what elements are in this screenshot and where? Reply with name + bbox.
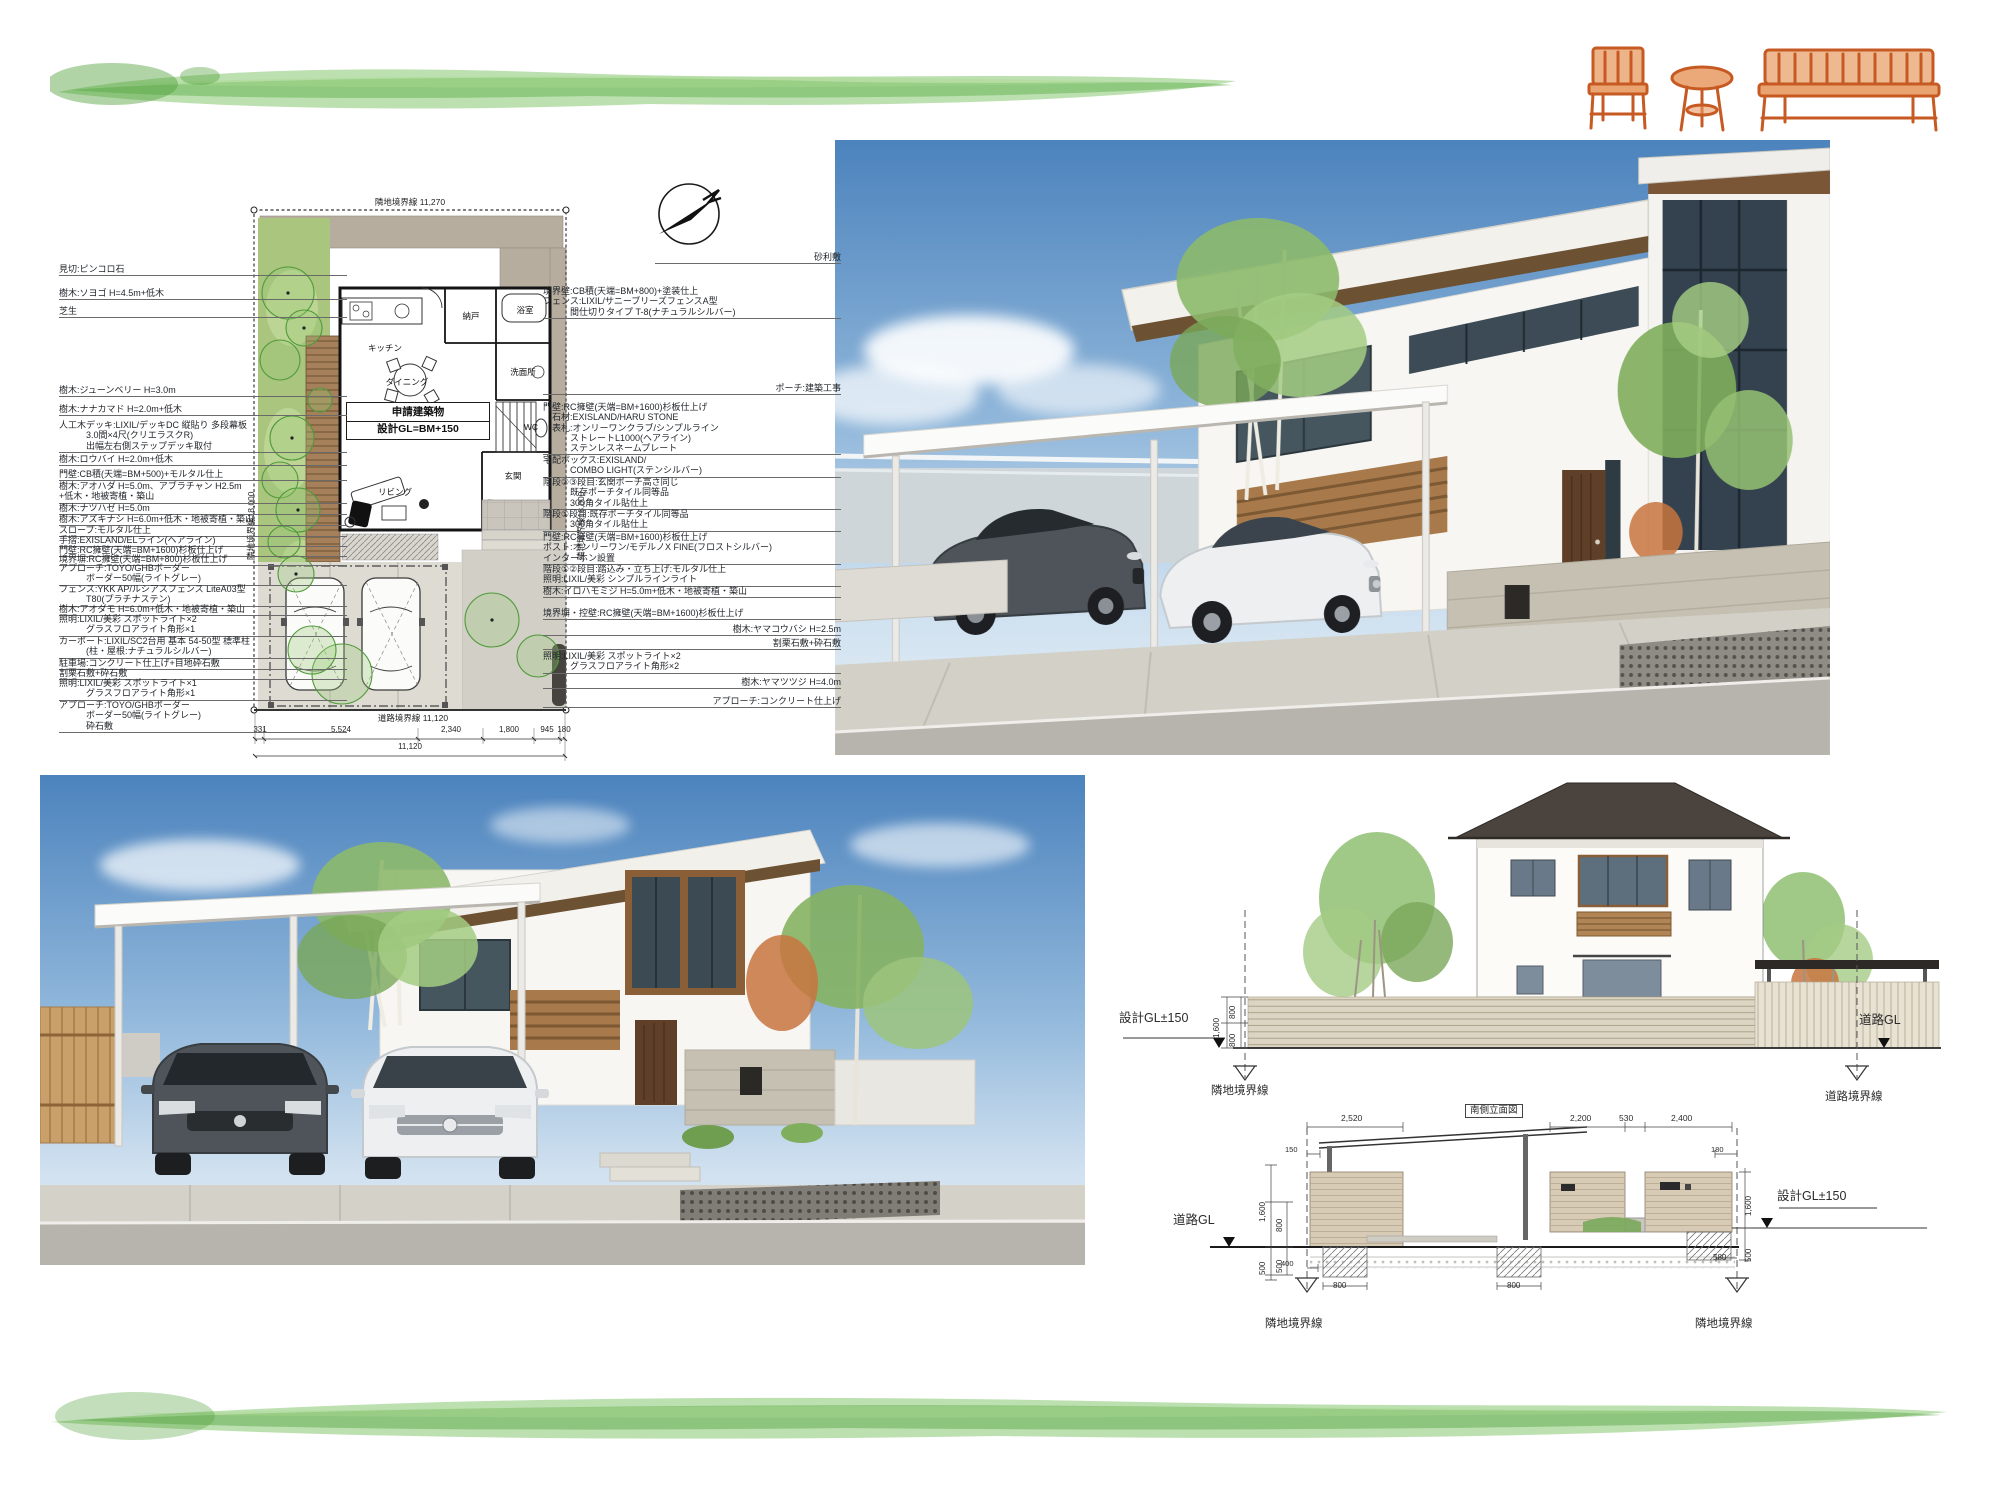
plan-label: 樹木:ヤマコウバシ H=2.5m [543, 624, 841, 636]
plan-label: アプローチ:TOYO/GHBボーダー ボーダー50幅(ライトグレー) 砕石敷 [59, 700, 347, 733]
chair-icon [1589, 48, 1647, 128]
elevation-annotation: 800 [1276, 1219, 1284, 1232]
plan-label: 芝生 [59, 306, 347, 318]
plan-label: 見切:ピンコロ石 [59, 264, 347, 276]
site-plan-panel: 申請建築物 設計GL=BM+150 キッチン納戸浴室洗面所ダイニングWC玄関リビ… [55, 140, 845, 840]
room-label: 洗面所 [510, 366, 536, 378]
elevation-annotation: 道路GL [1173, 1214, 1215, 1227]
room-label: 浴室 [516, 304, 533, 316]
elevation-annotation: 隣地境界線 [1211, 1086, 1269, 1098]
plan-label: 割栗石敷+砕石敷 [543, 638, 841, 650]
front-elevation [1123, 783, 1941, 1080]
plan-label: 人工木デッキ:LIXIL/デッキDC 縦貼り 多段幕板 3.0間×4尺(クリエラ… [59, 420, 347, 453]
elevation-annotation: 800 [1229, 1034, 1237, 1047]
elevation-annotation: 800 [1229, 1006, 1237, 1019]
room-label: リビング [378, 486, 412, 498]
plan-label: 門壁:CB積(天端=BM+500)+モルタル仕上 [59, 469, 347, 481]
plan-label: 門壁:RC擁壁(天端=BM+1600)杉板仕上げ 石材:EXISLAND/HAR… [543, 402, 841, 455]
presentation-board: 申請建築物 設計GL=BM+150 キッチン納戸浴室洗面所ダイニングWC玄関リビ… [0, 0, 2000, 1500]
plan-label: 樹木:ロウバイ H=2.0m+低木 [59, 454, 347, 466]
render-front [40, 775, 1085, 1265]
room-label: 納戸 [462, 310, 479, 322]
room-label: ダイニング [386, 376, 429, 388]
elevation-annotation: 150 [1285, 1146, 1298, 1154]
elevation-annotation: 500 [1259, 1262, 1267, 1275]
elevation-annotation: 500 [1745, 1249, 1753, 1262]
bench-icon [1759, 50, 1939, 130]
plan-label: 階段①②段目:踏込み・立ち上げ:モルタル仕上 照明:LIXIL/美彩 シンプルラ… [543, 564, 841, 587]
title-line1: 申請建築物 [347, 405, 489, 420]
plan-label: ポーチ:建築工事 [543, 383, 841, 395]
elevation-annotation: 2,200 [1570, 1114, 1591, 1123]
section-drawing [1210, 1122, 1927, 1292]
plan-label: 樹木:ソヨゴ H=4.5m+低木 [59, 288, 347, 300]
elevation-annotation: 1,600 [1745, 1196, 1753, 1216]
elevation-annotation: 2,520 [1341, 1114, 1362, 1123]
room-label: 玄関 [504, 470, 521, 482]
brush-stroke-top [50, 52, 1250, 122]
plan-annotation: 11,120 [398, 742, 422, 751]
plan-annotation: 道路境界線 11,120 [378, 712, 448, 724]
render-perspective [835, 140, 1830, 755]
plan-annotation: 180 [557, 725, 570, 734]
plan-label: 樹木:イロハモミジ H=5.0m+低木・地被寄植・築山 [543, 586, 841, 598]
elevation-annotation: 設計GL±150 [1119, 1012, 1188, 1025]
title-line2: 設計GL=BM+150 [347, 421, 489, 437]
plan-label: 境界壁:CB積(天端=BM+800)+塗装仕上 フェンス:LIXIL/サニーブリ… [543, 286, 841, 319]
room-label: WC [524, 422, 538, 432]
elevation-annotation: 隣地境界線 [1265, 1319, 1323, 1331]
plan-annotation: 945 [540, 725, 553, 734]
elevation-annotation: 隣地境界線 [1695, 1319, 1753, 1331]
room-label: キッチン [368, 342, 402, 354]
plan-label: 照明:LIXIL/美彩 スポットライト×2 グラスフロアライト角形×2 [543, 651, 841, 674]
elevation-annotation: 南側立面図 [1465, 1104, 1523, 1118]
plan-annotation: 2,340 [441, 725, 461, 734]
brush-stroke-bottom [45, 1378, 1957, 1456]
plan-label: 階段①段目:既存ポーチタイル同等品 300角タイル貼仕上 [543, 509, 841, 532]
plan-label: 樹木:ジューンベリー H=3.0m [59, 385, 347, 397]
elevation-annotation: 1,600 [1259, 1202, 1267, 1222]
plan-label: 砂利敷 [655, 252, 841, 264]
elevation-annotation: 道路境界線 [1825, 1092, 1883, 1104]
plan-label: 門壁:RC擁壁(天端=BM+1600)杉板仕上げ ポスト:オンリーワン/モデルノ… [543, 532, 841, 565]
elevation-annotation: 400 [1281, 1260, 1294, 1268]
elevation-annotation: 1,600 [1213, 1018, 1221, 1038]
plan-annotation: 隣地境界線 11,270 [375, 196, 445, 208]
elevation-annotation: 2,400 [1671, 1114, 1692, 1123]
elevation-panel: 設計GL±1501,600800800隣地境界線道路GL道路境界線隣地境界線隣地… [1115, 770, 2000, 1350]
elevation-annotation: 800 [1507, 1282, 1520, 1290]
elevation-annotation: 530 [1619, 1114, 1633, 1123]
plan-label: 樹木:アオハダ H=5.0m、アブラチャン H2.5m +低木・地被寄植・築山 [59, 481, 347, 504]
furniture-illustration [1575, 42, 1965, 142]
plan-label: 樹木:ナナカマド H=2.0m+低木 [59, 404, 347, 416]
plan-label: 照明:LIXIL/美彩 スポットライト×2 グラスフロアライト角形×1 [59, 614, 347, 637]
plan-label: 樹木:ヤマツツジ H=4.0m [543, 677, 841, 689]
plan-label: 階段②③段目:玄関ポーチ高さ同じ 既存ポーチタイル同等品 300角タイル貼仕上 [543, 477, 841, 510]
plan-label: 宅配ボックス:EXISLAND/ COMBO LIGHT(ステンシルバー) [543, 455, 841, 478]
elevation-annotation: 800 [1333, 1282, 1346, 1290]
elevation-annotation: 180 [1711, 1146, 1724, 1154]
title-box: 申請建築物 設計GL=BM+150 [346, 402, 490, 440]
plan-label: 境界塀・控壁:RC擁壁(天端=BM+1600)杉板仕上げ [543, 608, 841, 620]
elevation-annotation: 580 [1713, 1254, 1726, 1262]
plan-label: アプローチ:TOYO/GHBボーダー ボーダー50幅(ライトグレー) [59, 563, 347, 586]
plan-label: アプローチ:コンクリート仕上げ [543, 696, 841, 708]
table-icon [1672, 67, 1732, 130]
elevation-annotation: 設計GL±150 [1777, 1190, 1846, 1203]
elevation-annotation: 道路GL [1859, 1014, 1901, 1027]
north-arrow-icon [653, 176, 725, 256]
plan-annotation: 1,800 [499, 725, 519, 734]
plan-label: 照明:LIXIL/美彩 スポットライト×1 グラスフロアライト角形×1 [59, 678, 347, 701]
elevation-drawing [1115, 770, 2000, 1350]
plan-label: カーポート:LIXIL/SC2台用 基本 54-50型 標準柱 (柱・屋根:ナチ… [59, 636, 347, 659]
